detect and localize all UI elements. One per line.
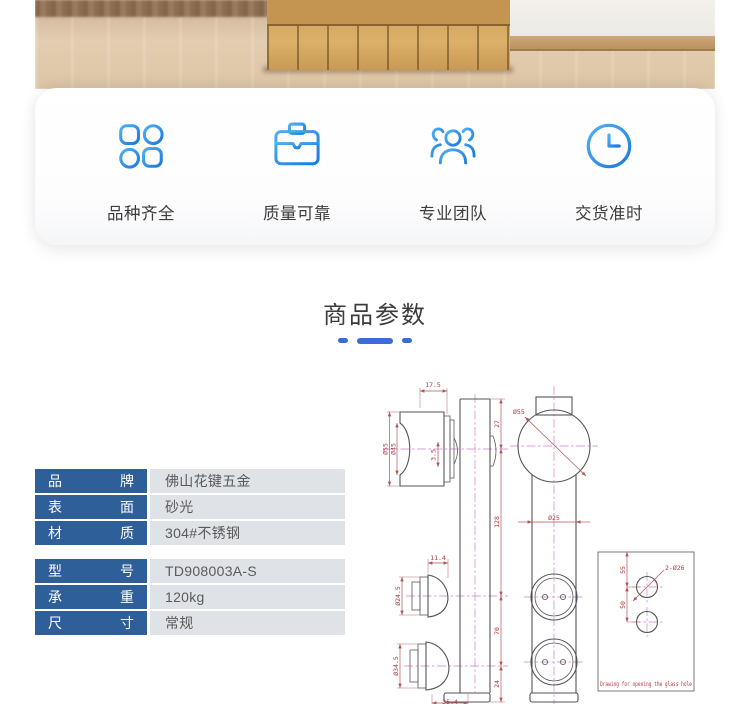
clock-icon [582,119,636,173]
product-photo [35,0,715,89]
underline-dash [402,338,412,343]
feature-label: 专业团队 [419,200,487,224]
feature-label: 品种齐全 [107,200,175,224]
spec-key: 型号 [35,559,147,583]
dimension-label: 50 [619,601,627,609]
spec-value: 304#不锈钢 [150,521,345,545]
feature-label: 交货准时 [575,200,643,224]
table-row: 承重 120kg [35,585,345,609]
table-row: 材质 304#不锈钢 [35,521,345,545]
spec-value: 砂光 [150,495,345,519]
spec-value: 120kg [150,585,345,609]
dimension-label: Ø34.5 [392,656,400,676]
dimension-label: Ø45 [390,443,398,455]
title-underline [0,337,750,344]
dimension-label: 27 [493,420,501,428]
cad-front-view: Ø55 Ø25 [510,386,598,704]
feature-label: 质量可靠 [263,200,331,224]
section-title: 商品参数 [0,295,750,330]
cad-side-view: 17.5 Ø55 Ø45 3.5 27 128 70 24 11.4 Ø24.5 [382,381,509,704]
briefcase-icon [270,119,324,173]
spec-key: 承重 [35,585,147,609]
dimension-label: 70 [493,627,501,635]
dimension-label: Ø55 [382,443,390,455]
feature-item-variety: 品种齐全 [63,88,219,245]
cad-glass-template: 55 50 2-Ø26 Drawing for opening the glas… [598,552,694,691]
grid-icon [114,119,168,173]
dimension-label: Ø24.5 [394,586,402,606]
spec-key: 材质 [35,521,147,545]
spec-value: 佛山花键五金 [150,469,345,493]
dimension-label: 17.5 [425,381,441,389]
dimension-label: Ø25 [548,514,560,522]
underline-dash [357,338,393,344]
drawing-note: Drawing for opening the glass hole [600,680,692,688]
dimension-label: 11.4 [430,554,446,562]
wood-door-brace-region [267,0,510,26]
feature-item-quality: 质量可靠 [219,88,375,245]
spec-key: 尺寸 [35,611,147,635]
spec-value: 常规 [150,611,345,635]
table-row: 表面 砂光 [35,495,345,519]
dimension-label: 35.4 [442,698,458,704]
table-row: 尺寸 常规 [35,611,345,635]
table-row: 品牌 佛山花键五金 [35,469,345,493]
feature-item-delivery: 交货准时 [531,88,687,245]
dimension-label: 128 [493,516,501,528]
underline-dash [338,338,348,343]
table-row: 型号 TD908003A-S [35,559,345,583]
spec-key: 品牌 [35,469,147,493]
feature-item-team: 专业团队 [375,88,531,245]
baseboard-photo-region [510,36,715,51]
team-icon [426,119,480,173]
cad-drawing: 17.5 Ø55 Ø45 3.5 27 128 70 24 11.4 Ø24.5 [380,374,750,704]
dimension-label: 3.5 [430,449,438,461]
feature-card: 品种齐全 质量可靠 专业团队 交货准时 [35,88,715,245]
dimension-label: 55 [619,566,627,574]
wall-photo-region [510,0,715,38]
spec-value: TD908003A-S [150,559,345,583]
spec-key: 表面 [35,495,147,519]
dimension-label: 2-Ø26 [665,564,685,572]
spec-table: 品牌 佛山花键五金 表面 砂光 材质 304#不锈钢 型号 TD908003A-… [35,469,345,637]
dimension-label: 24 [493,680,501,688]
product-detail-page: 品种齐全 质量可靠 专业团队 交货准时 [0,0,750,704]
dimension-label: Ø55 [513,408,525,416]
